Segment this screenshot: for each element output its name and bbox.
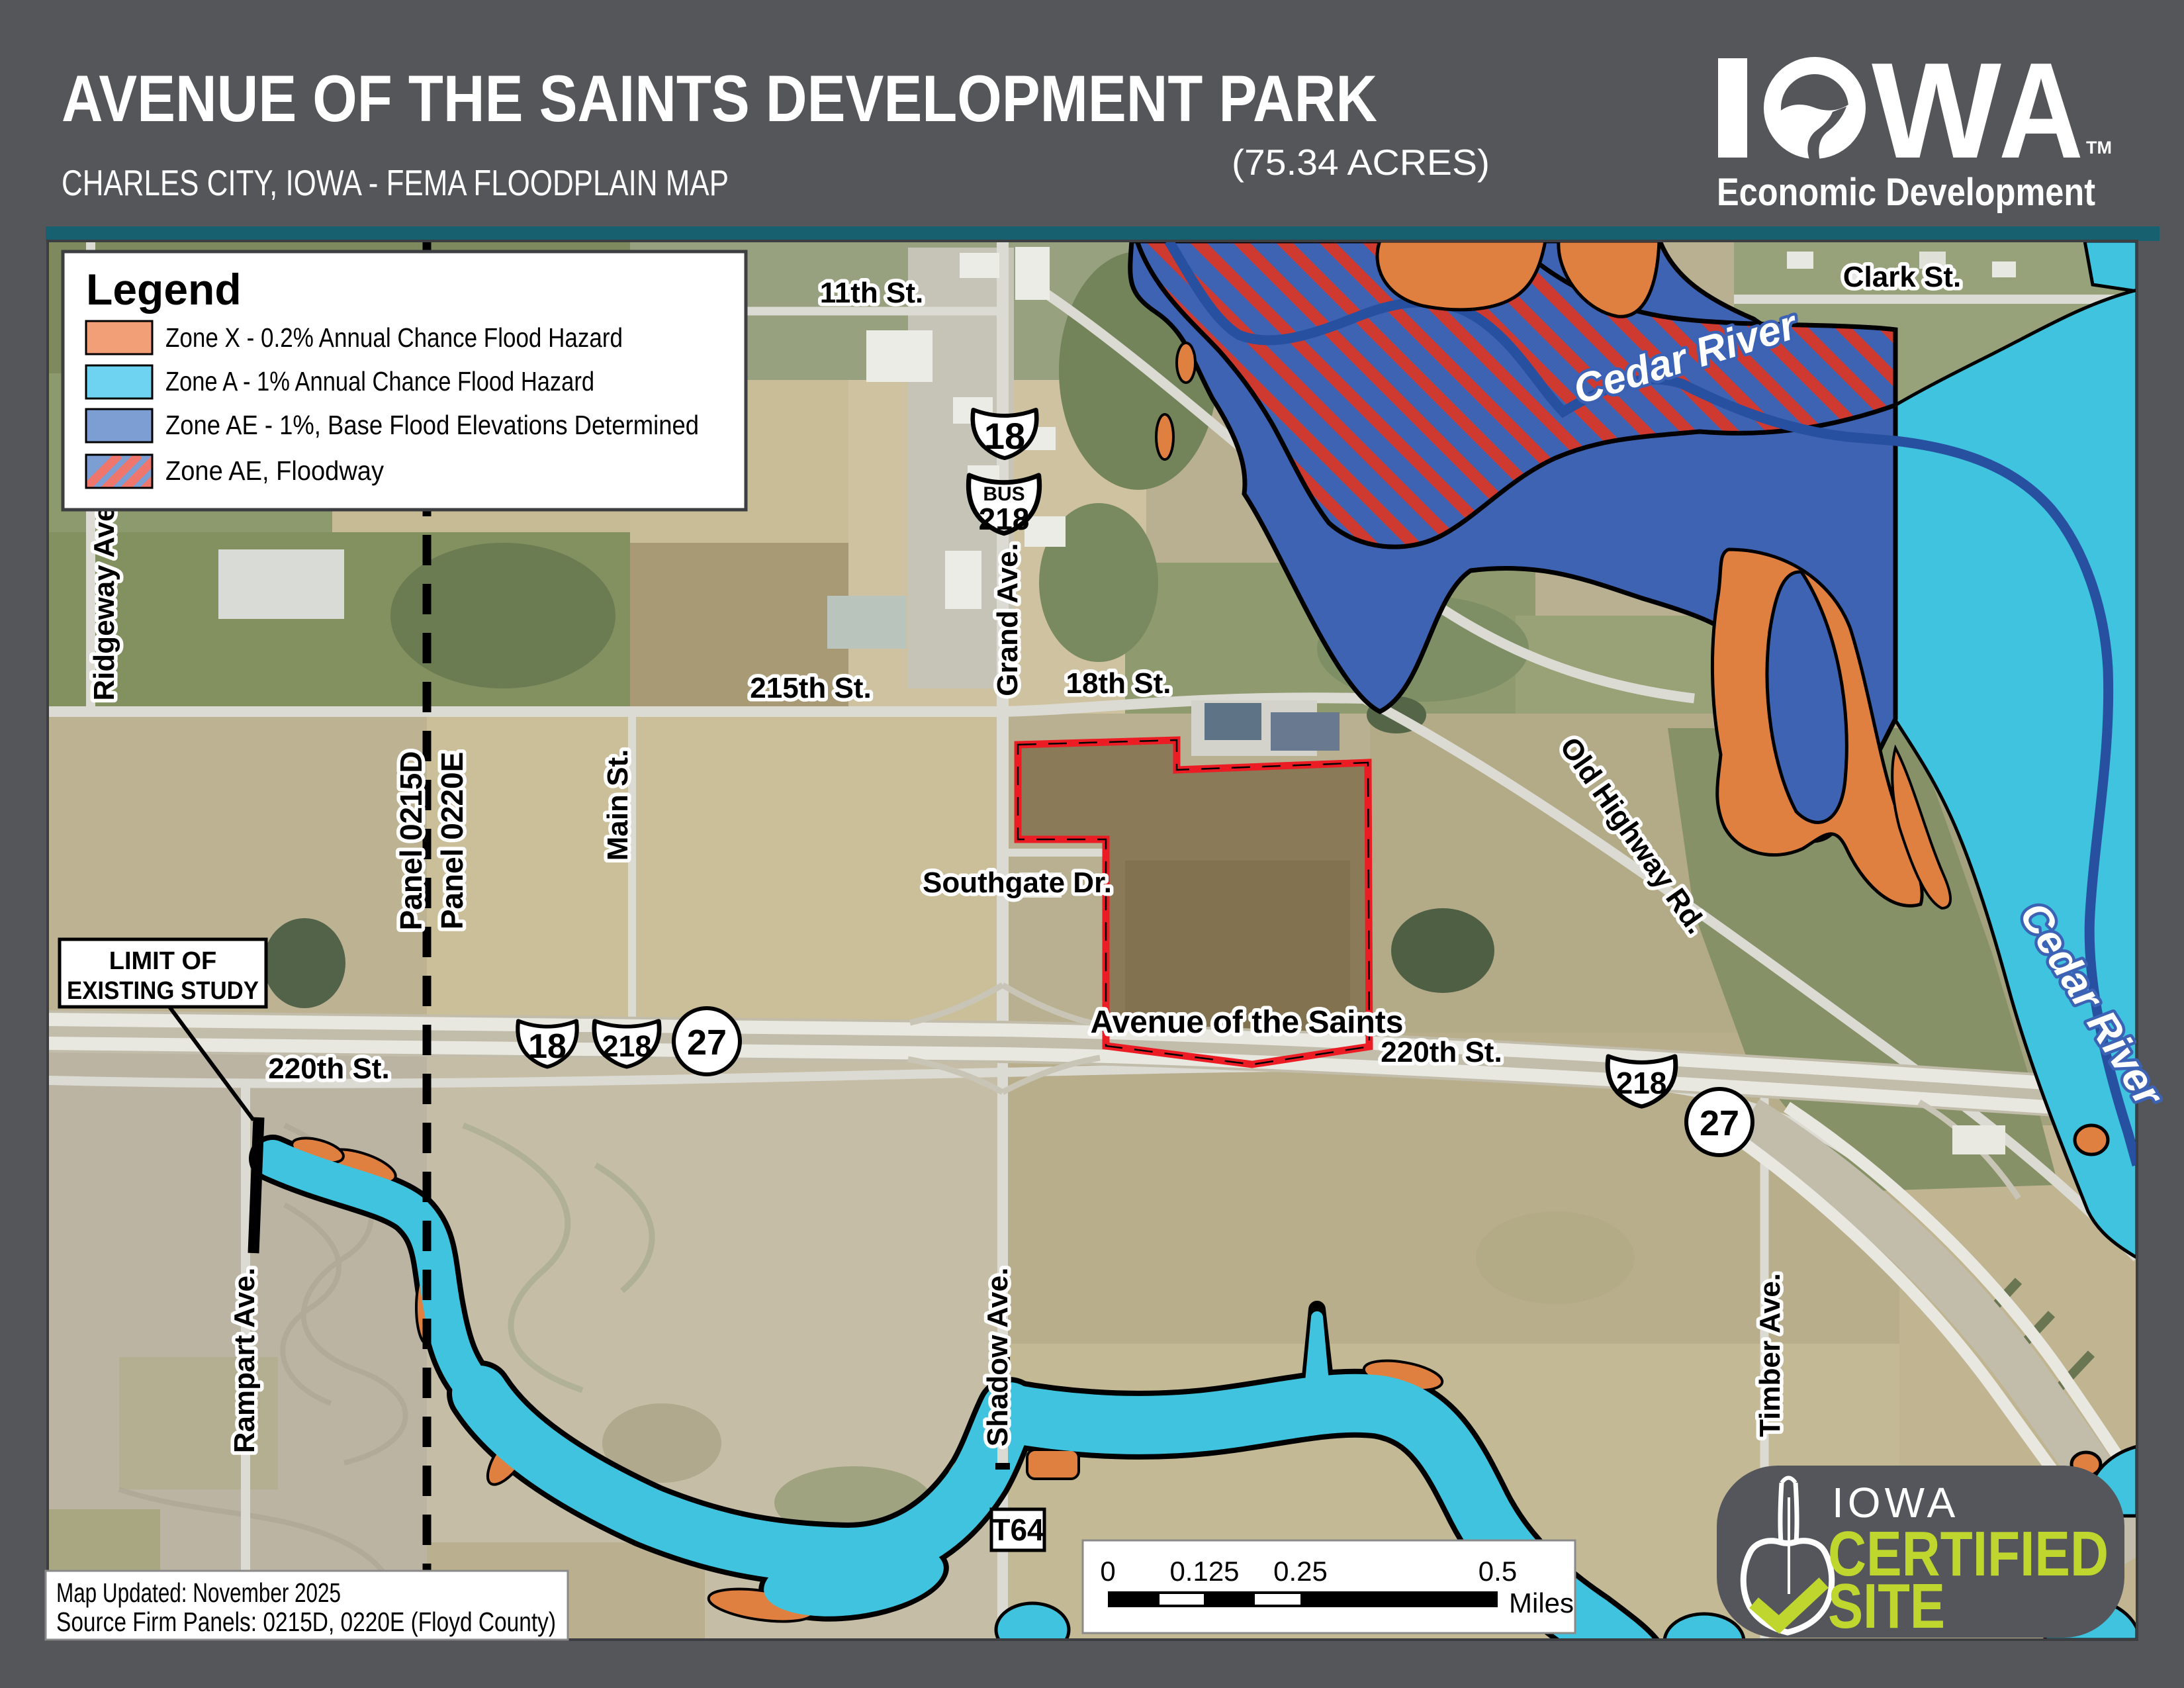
svg-text:11th St.: 11th St. — [820, 277, 924, 309]
svg-text:Zone AE, Floodway: Zone AE, Floodway — [165, 455, 384, 486]
svg-text:220th St.: 220th St. — [1381, 1036, 1502, 1068]
svg-text:218: 218 — [979, 502, 1030, 536]
svg-text:Southgate Dr.: Southgate Dr. — [923, 867, 1112, 899]
svg-text:Economic Development: Economic Development — [1717, 171, 2095, 214]
svg-text:0.5: 0.5 — [1479, 1556, 1517, 1587]
svg-text:218: 218 — [602, 1029, 651, 1063]
svg-text:LIMIT OF: LIMIT OF — [109, 947, 217, 975]
svg-text:A: A — [1999, 34, 2083, 187]
svg-text:AVENUE OF THE SAINTS DEVELOPME: AVENUE OF THE SAINTS DEVELOPMENT PARK — [62, 62, 1377, 135]
svg-text:0: 0 — [1100, 1556, 1115, 1587]
svg-text:Panel 0215D: Panel 0215D — [394, 751, 428, 930]
svg-text:Miles: Miles — [1509, 1587, 1574, 1618]
svg-text:Timber Ave.: Timber Ave. — [1754, 1273, 1786, 1437]
svg-text:SITE: SITE — [1828, 1571, 1945, 1642]
svg-text:218: 218 — [1616, 1066, 1667, 1100]
svg-text:18: 18 — [984, 415, 1025, 457]
svg-text:Clark St.: Clark St. — [1843, 261, 1962, 293]
svg-text:27: 27 — [1700, 1103, 1739, 1143]
svg-text:Map Updated: November 2025: Map Updated: November 2025 — [56, 1577, 341, 1608]
svg-text:18: 18 — [528, 1027, 567, 1066]
svg-text:Zone AE - 1%, Base Flood Eleva: Zone AE - 1%, Base Flood Elevations Dete… — [165, 410, 699, 440]
svg-text:0.125: 0.125 — [1169, 1556, 1239, 1587]
svg-text:Ridgeway Ave.: Ridgeway Ave. — [88, 497, 120, 700]
svg-text:18th St.: 18th St. — [1066, 667, 1171, 700]
svg-text:TM: TM — [2086, 138, 2112, 158]
svg-text:Rampart Ave.: Rampart Ave. — [228, 1268, 261, 1453]
svg-text:215th St.: 215th St. — [750, 672, 871, 704]
svg-text:Zone X - 0.2% Annual Chance Fl: Zone X - 0.2% Annual Chance Flood Hazard — [165, 322, 623, 353]
svg-text:Zone A - 1% Annual Chance Floo: Zone A - 1% Annual Chance Flood Hazard — [165, 366, 594, 397]
svg-text:Grand Ave.: Grand Ave. — [991, 543, 1024, 696]
svg-text:220th St.: 220th St. — [268, 1053, 389, 1085]
svg-text:(75.34 ACRES): (75.34 ACRES) — [1232, 142, 1490, 183]
svg-text:Shadow Ave.: Shadow Ave. — [981, 1268, 1014, 1447]
svg-text:Avenue of the Saints: Avenue of the Saints — [1091, 1005, 1404, 1040]
svg-text:0.25: 0.25 — [1273, 1556, 1328, 1587]
svg-text:Main St.: Main St. — [602, 749, 634, 861]
svg-text:W: W — [1872, 34, 2002, 187]
svg-text:27: 27 — [687, 1023, 727, 1062]
svg-text:EXISTING STUDY: EXISTING STUDY — [67, 977, 259, 1005]
svg-text:Legend: Legend — [86, 265, 242, 314]
svg-text:T64: T64 — [991, 1513, 1044, 1547]
svg-text:Panel 0220E: Panel 0220E — [435, 752, 469, 930]
svg-text:CHARLES CITY, IOWA - FEMA FLOO: CHARLES CITY, IOWA - FEMA FLOODPLAIN MAP — [62, 162, 729, 203]
svg-text:Source Firm Panels: 0215D, 022: Source Firm Panels: 0215D, 0220E (Floyd … — [56, 1607, 556, 1637]
